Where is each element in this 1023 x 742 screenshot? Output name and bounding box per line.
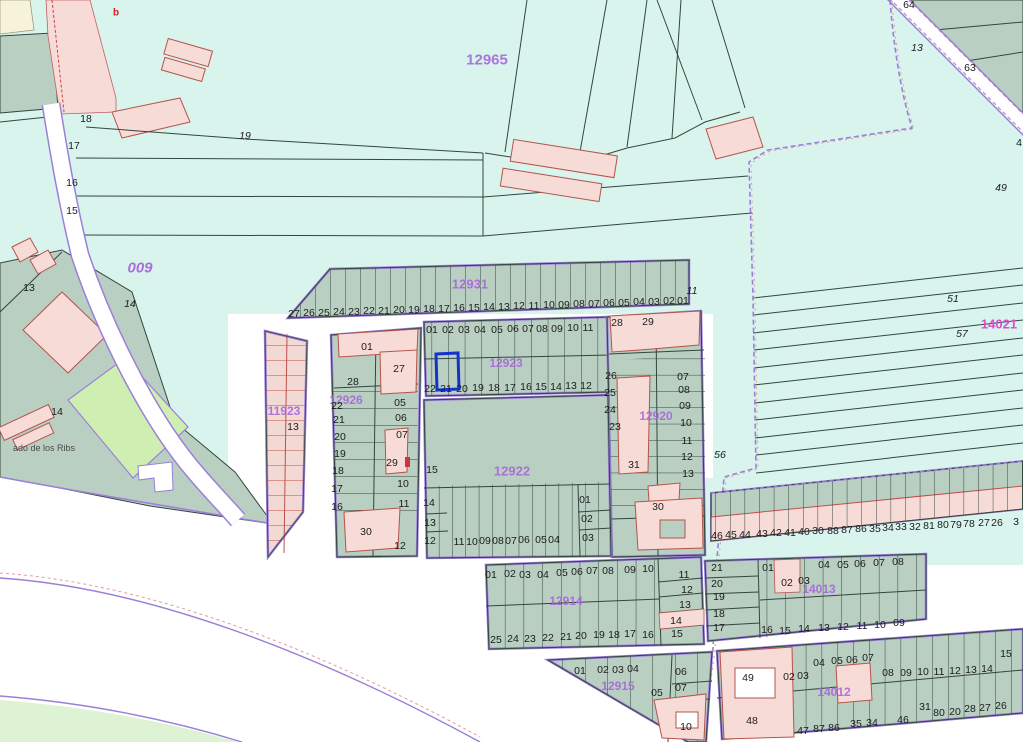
parcel-number: 15: [468, 302, 480, 314]
parcel-number: 51: [947, 293, 959, 305]
parcel-number: 22: [424, 383, 436, 395]
parcel-number: 15: [1000, 648, 1012, 660]
parcel-number: 28: [964, 703, 976, 715]
parcel-number: 26: [303, 307, 315, 319]
parcel-number: 49: [742, 672, 754, 684]
parcel-number: 14: [981, 663, 993, 675]
parcel-number: 23: [348, 306, 360, 318]
parcel-number: 21: [440, 383, 452, 395]
parcel-number: 09: [679, 400, 691, 412]
parcel-number: 18: [423, 303, 435, 315]
parcel-number: 06: [571, 566, 583, 578]
parcel-number: 15: [779, 625, 791, 637]
parcel-number: 14: [550, 381, 562, 393]
parcel-number: 13: [965, 664, 977, 676]
parcel-number: 09: [551, 323, 563, 335]
parcel-number: 07: [505, 535, 517, 547]
parcel-number: 11: [857, 620, 868, 632]
parcel-number: 13: [565, 380, 577, 392]
parcel-number: 12: [681, 451, 693, 463]
parcel-number: 19: [593, 629, 605, 641]
parcel-number: 41: [784, 527, 796, 539]
parcel-number: 02: [783, 671, 795, 683]
parcel-number: 08: [536, 323, 548, 335]
block-label-12965: 12965: [466, 52, 508, 69]
parcel-number: 08: [892, 556, 904, 568]
parcel-number: 46: [711, 530, 723, 542]
parcel-number: 12: [424, 535, 436, 547]
parcel-number: 11: [454, 536, 465, 548]
parcel-number: 17: [624, 628, 636, 640]
parcel-number: 21: [333, 414, 345, 426]
street-name-label: ado de los Ribs: [13, 443, 76, 453]
parcel-number: 15: [671, 628, 683, 640]
parcel-number: 02: [581, 513, 593, 525]
parcel-number: 19: [713, 591, 725, 603]
parcel-number: 27: [979, 702, 991, 714]
block-label-12922: 12922: [494, 464, 530, 479]
parcel-number: 20: [711, 578, 723, 590]
parcel-number: 21: [378, 305, 390, 317]
parcel-number: 33: [895, 521, 907, 533]
parcel-number: 11: [399, 498, 410, 510]
parcel-number: 10: [642, 563, 654, 575]
block-label-14012: 14012: [817, 685, 851, 699]
parcel-number: 87: [841, 524, 853, 536]
parcel-number: 23: [609, 421, 621, 433]
parcel-number: 17: [713, 622, 725, 634]
parcel-number: 04: [537, 569, 549, 581]
parcel-number: 11: [934, 666, 945, 678]
parcel-number: 09: [624, 564, 636, 576]
parcel-number: 13: [911, 42, 923, 54]
parcel-number: 63: [964, 62, 976, 74]
parcel-number: 13: [818, 622, 830, 634]
parcel-number: 18: [80, 113, 92, 125]
parcel-number: 27: [978, 517, 990, 529]
parcel-number: 03: [797, 670, 809, 682]
parcel-number: 78: [963, 518, 975, 530]
parcel-number: 11: [583, 322, 594, 334]
parcel-number: 34: [882, 522, 894, 534]
block-label-009: 009: [127, 260, 153, 277]
parcel-number: 28: [347, 376, 359, 388]
parcel-number: 23: [524, 633, 536, 645]
parcel-number: 88: [827, 525, 839, 537]
parcel-number: 27: [393, 363, 405, 375]
red-marker: [405, 457, 410, 467]
parcel-number: 16: [520, 381, 532, 393]
parcel-number: 06: [854, 558, 866, 570]
parcel-number: 09: [558, 299, 570, 311]
parcel-number: 25: [604, 387, 616, 399]
parcel-number: 22: [331, 400, 343, 412]
parcel-number: 32: [909, 521, 921, 533]
parcel-number: 14: [124, 298, 136, 310]
parcel-number: 14: [798, 623, 810, 635]
parcel-number: 35: [869, 523, 881, 535]
parcel-number: 04: [627, 663, 639, 675]
parcel-number: 08: [602, 565, 614, 577]
block-label-12914: 12914: [549, 594, 583, 608]
parcel-number: 30: [652, 501, 664, 513]
parcel-number: 07: [522, 323, 534, 335]
parcel-number: 03: [612, 664, 624, 676]
parcel-number: 29: [642, 316, 654, 328]
parcel-number: 13: [424, 517, 436, 529]
parcel-number: 24: [507, 633, 519, 645]
parcel-number: 19: [408, 304, 420, 316]
parcel-number: 10: [917, 666, 929, 678]
parcel-number: 12: [949, 665, 961, 677]
parcel-number: 20: [575, 630, 587, 642]
parcel-number: 43: [756, 528, 768, 540]
parcel-number: 42: [770, 527, 782, 539]
parcel-number: 19: [472, 382, 484, 394]
parcel-number: 11: [682, 435, 693, 447]
block-label-12920: 12920: [639, 409, 673, 423]
parcel-number: 01: [485, 569, 497, 581]
parcel-number: 03: [582, 532, 594, 544]
parcel-number: 29: [386, 457, 398, 469]
parcel-number: 19: [239, 130, 251, 142]
parcel-number: 86: [828, 722, 840, 734]
parcel-number: 80: [937, 519, 949, 531]
parcel-number: 24: [604, 404, 616, 416]
building: [344, 508, 400, 552]
parcel-number: 20: [949, 706, 961, 718]
parcel-number: b: [113, 8, 119, 19]
parcel-number: 13: [679, 599, 691, 611]
parcel-number: 15: [426, 464, 438, 476]
parcel-number: 14: [483, 301, 495, 313]
parcel-number: 05: [651, 687, 663, 699]
parcel-number: 01: [677, 295, 689, 307]
parcel-number: 34: [866, 717, 878, 729]
parcel-number: 10: [567, 322, 579, 334]
cadastral-map: b1817161519009131414ado de los Ribs12965…: [0, 0, 1023, 742]
parcel-number: 07: [677, 371, 689, 383]
parcel-number: 26: [605, 370, 617, 382]
parcel-number: 79: [950, 519, 962, 531]
parcel-number: 14: [670, 615, 682, 627]
parcel-number: 04: [633, 296, 645, 308]
parcel-number: 10: [466, 536, 478, 548]
parcel-number: 05: [535, 534, 547, 546]
parcel-number: 18: [332, 465, 344, 477]
parcel-number: 01: [762, 562, 774, 574]
parcel-number: 22: [363, 305, 375, 317]
parcel-number: 13: [682, 468, 694, 480]
parcel-number: 04: [818, 559, 830, 571]
parcel-number: 14: [423, 497, 435, 509]
parcel-number: 19: [334, 448, 346, 460]
building-court: [660, 520, 685, 538]
parcel-number: 13: [23, 282, 35, 294]
building: [610, 311, 700, 352]
building-court: [735, 668, 775, 698]
parcel-number: 26: [995, 700, 1007, 712]
parcel-number: 08: [882, 667, 894, 679]
block-12920[interactable]: [607, 311, 705, 557]
block-label-12915: 12915: [601, 679, 635, 693]
parcel-number: 3: [1013, 516, 1019, 528]
parcel-number: 07: [873, 557, 885, 569]
parcel-number: 01: [361, 341, 373, 353]
parcel-number: 30: [360, 526, 372, 538]
block-label-12923: 12923: [489, 356, 523, 370]
parcel-number: 15: [66, 205, 78, 217]
parcel-number: 18: [713, 608, 725, 620]
parcel-number: 15: [535, 381, 547, 393]
parcel-number: 87: [813, 723, 825, 735]
parcel-number: 06: [395, 412, 407, 424]
parcel-number: 04: [474, 324, 486, 336]
parcel-number: 30: [812, 525, 824, 537]
parcel-number: 07: [586, 565, 598, 577]
parcel-number: 16: [331, 501, 343, 513]
parcel-number: 47: [797, 725, 809, 737]
parcel-number: 81: [923, 520, 935, 532]
parcel-number: 21: [711, 562, 723, 574]
parcel-number: 03: [648, 296, 660, 308]
parcel-number: 10: [874, 619, 886, 631]
parcel-number: 18: [608, 629, 620, 641]
parcel-number: 02: [442, 324, 454, 336]
parcel-number: 16: [642, 629, 654, 641]
parcel-number: 02: [597, 664, 609, 676]
parcel-number: 4: [1016, 137, 1022, 149]
parcel-number: 12: [513, 300, 525, 312]
parcel-number: 12: [580, 380, 592, 392]
parcel-number: 20: [334, 431, 346, 443]
parcel-number: 02: [663, 295, 675, 307]
parcel-number: 10: [680, 417, 692, 429]
parcel-number: 44: [739, 529, 751, 541]
parcel-number: 07: [675, 682, 687, 694]
parcel-number: 12: [837, 621, 849, 633]
parcel-number: 05: [831, 655, 843, 667]
parcel-number: 28: [611, 317, 623, 329]
parcel-number: 07: [396, 429, 408, 441]
parcel-number: 31: [919, 701, 931, 713]
parcel-number: 56: [714, 449, 726, 461]
parcel-number: 49: [995, 182, 1007, 194]
parcel-number: 06: [518, 534, 530, 546]
parcel-number: 13: [287, 421, 299, 433]
parcel-number: 17: [331, 483, 343, 495]
parcel-number: 01: [579, 494, 591, 506]
parcel-number: 17: [504, 382, 516, 394]
parcel-number: 07: [862, 652, 874, 664]
parcel-number: 03: [519, 569, 531, 581]
parcel-number: 31: [628, 459, 640, 471]
parcel-number: 05: [491, 324, 503, 336]
parcel-number: 27: [288, 308, 300, 320]
parcel-number: 09: [900, 667, 912, 679]
parcel-number: 01: [574, 665, 586, 677]
parcel-number: 14: [51, 406, 63, 418]
parcel-number: 01: [426, 324, 438, 336]
parcel-number: 11: [529, 300, 540, 312]
parcel-number: 06: [846, 654, 858, 666]
parcel-number: 16: [66, 177, 78, 189]
parcel-number: 11: [679, 569, 690, 581]
parcel-number: 21: [560, 631, 572, 643]
parcel-number: 08: [492, 535, 504, 547]
parcel-number: 09: [479, 535, 491, 547]
parcel-number: 35: [850, 718, 862, 730]
parcel-number: 13: [498, 301, 510, 313]
parcel-number: 24: [333, 306, 345, 318]
parcel-number: 86: [855, 523, 867, 535]
parcel-number: 16: [453, 302, 465, 314]
parcel-number: 08: [573, 298, 585, 310]
parcel-number: 06: [507, 323, 519, 335]
parcel-number: 02: [781, 577, 793, 589]
parcel-number: 12: [681, 584, 693, 596]
parcel-number: 04: [548, 534, 560, 546]
cream-parcel: [0, 0, 34, 34]
parcel-number: 48: [746, 715, 758, 727]
parcel-number: 10: [543, 299, 555, 311]
parcel-number: 03: [798, 575, 810, 587]
parcel-number: 25: [490, 634, 502, 646]
parcel-number: 05: [394, 397, 406, 409]
block-label-12931: 12931: [452, 277, 488, 292]
parcel-number: 08: [678, 384, 690, 396]
parcel-number: 25: [318, 307, 330, 319]
parcel-number: 07: [588, 298, 600, 310]
parcel-number: 46: [897, 714, 909, 726]
parcel-number: 04: [813, 657, 825, 669]
parcel-number: 64: [903, 0, 915, 11]
parcel-number: 17: [68, 140, 80, 152]
parcel-number: 12: [394, 540, 406, 552]
parcel-number: 16: [761, 624, 773, 636]
parcel-number: 10: [397, 478, 409, 490]
parcel-number: 26: [991, 517, 1003, 529]
parcel-number: 09: [893, 617, 905, 629]
block-label-11923: 11923: [268, 404, 301, 418]
parcel-number: 18: [488, 382, 500, 394]
parcel-number: 40: [798, 526, 810, 538]
parcel-number: 05: [837, 559, 849, 571]
parcel-number: 17: [438, 303, 450, 315]
parcel-number: 80: [933, 707, 945, 719]
parcel-number: 03: [458, 324, 470, 336]
cadastral-map-viewport: b1817161519009131414ado de los Ribs12965…: [0, 0, 1023, 742]
parcel-number: 05: [618, 297, 630, 309]
block-label-14021: 14021: [981, 317, 1017, 332]
parcel-number: 20: [393, 304, 405, 316]
parcel-number: 06: [675, 666, 687, 678]
parcel-number: 05: [556, 567, 568, 579]
parcel-number: 22: [542, 632, 554, 644]
parcel-number: 10: [680, 721, 692, 733]
parcel-number: 20: [456, 383, 468, 395]
parcel-number: 57: [956, 328, 969, 340]
parcel-number: 06: [603, 297, 615, 309]
parcel-number: 02: [504, 568, 516, 580]
parcel-number: 45: [725, 529, 737, 541]
